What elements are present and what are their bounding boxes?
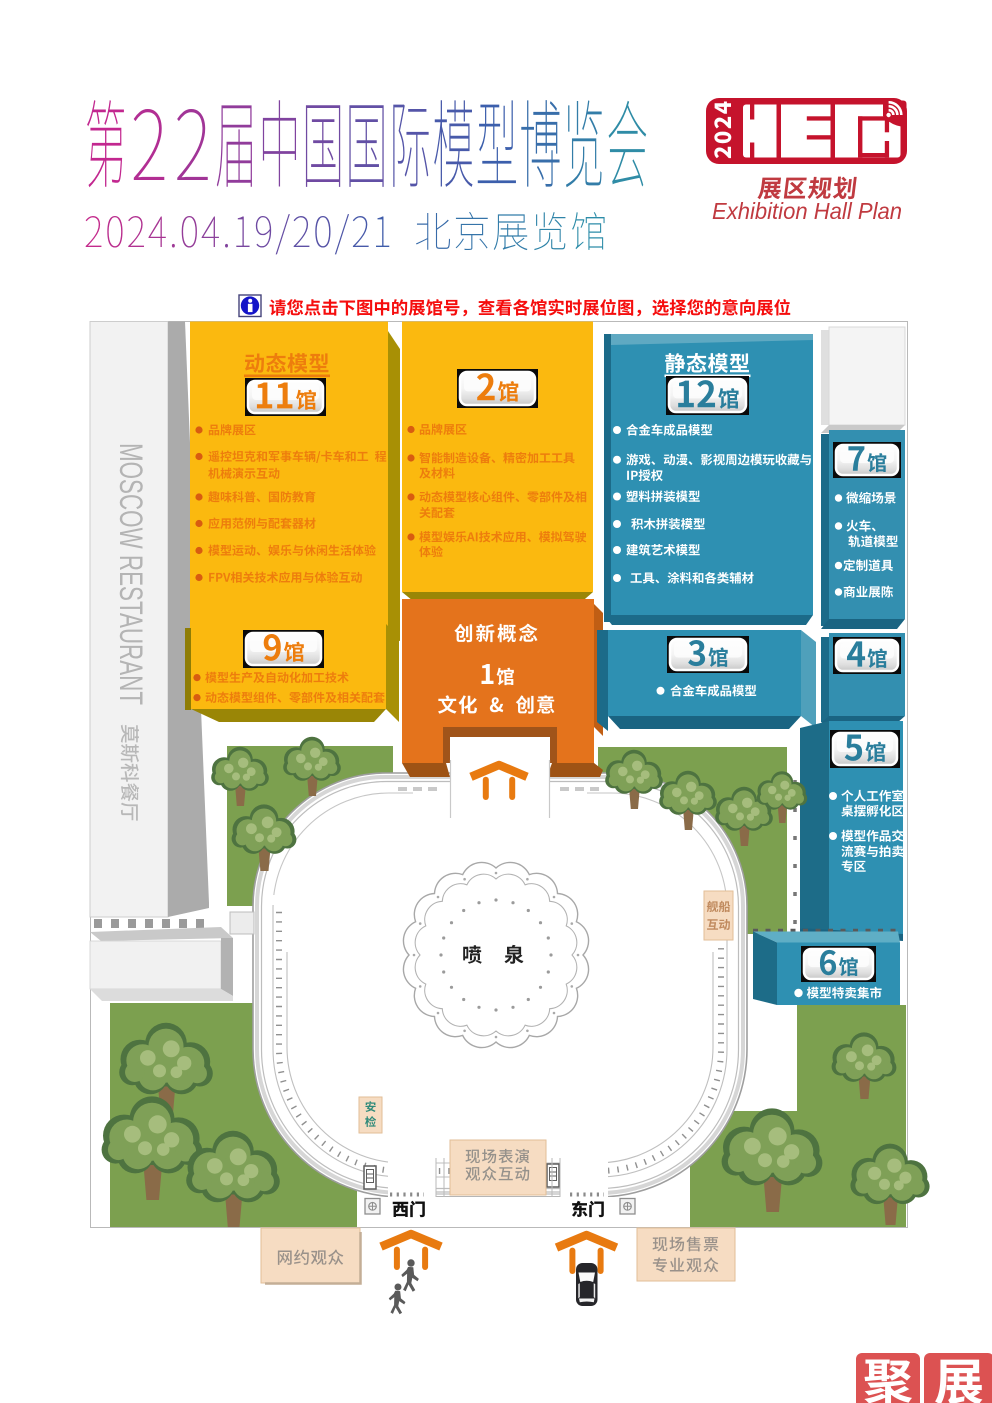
svg-text:Exhibition Hall Plan: Exhibition Hall Plan: [712, 198, 902, 224]
svg-text:MOSCOW RESTAURANT: MOSCOW RESTAURANT: [113, 443, 149, 705]
